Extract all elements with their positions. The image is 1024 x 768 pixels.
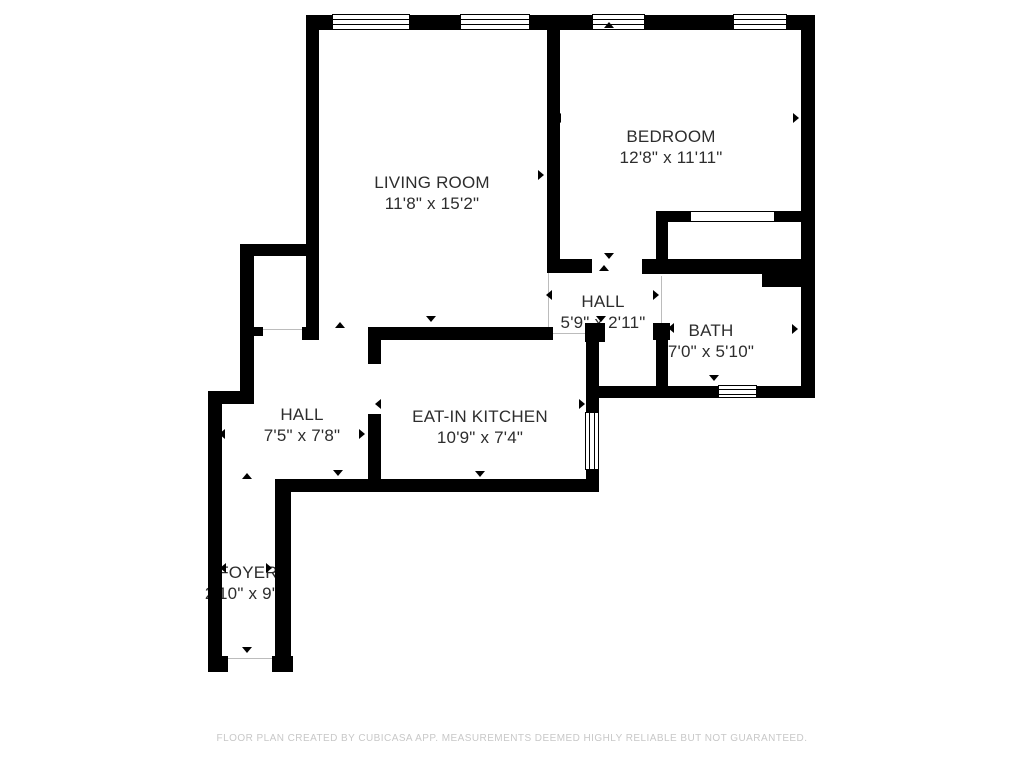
dimension-arrow-up-icon <box>335 322 345 328</box>
entry-door-opening <box>228 658 272 659</box>
dimension-arrow-left-icon <box>219 429 225 439</box>
room-label-bath: BATH7'0" x 5'10" <box>668 320 754 362</box>
room-dimensions-hall-lower: 7'5" x 7'8" <box>264 425 341 446</box>
room-label-bedroom: BEDROOM12'8" x 11'11" <box>620 126 723 168</box>
dimension-arrow-right-icon <box>792 324 798 334</box>
wall-kitchen-top <box>368 327 553 340</box>
floor-plan: LIVING ROOM11'8" x 15'2"BEDROOM12'8" x 1… <box>0 0 1024 768</box>
wall-kitchen-left-lower <box>368 414 381 492</box>
room-dimensions-eat-in-kitchen: 10'9" x 7'4" <box>412 427 548 448</box>
wall-bath-bottom <box>586 386 815 398</box>
dimension-arrow-right-icon <box>266 563 272 573</box>
room-label-eat-in-kitchen: EAT-IN KITCHEN10'9" x 7'4" <box>412 406 548 448</box>
wall-living-left-foot <box>302 327 319 340</box>
bedroom-window-2-icon <box>733 14 787 30</box>
wall-hall-kitchen-bottom <box>275 479 598 492</box>
room-name-eat-in-kitchen: EAT-IN KITCHEN <box>412 406 548 427</box>
dimension-arrow-down-icon <box>333 470 343 476</box>
dimension-arrow-right-icon <box>793 113 799 123</box>
dimension-arrow-left-icon <box>220 563 226 573</box>
room-dimensions-bath: 7'0" x 5'10" <box>668 341 754 362</box>
floor-plan-canvas: LIVING ROOM11'8" x 15'2"BEDROOM12'8" x 1… <box>0 0 1024 768</box>
dimension-arrow-up-icon <box>599 265 609 271</box>
window-pane-line <box>593 19 644 25</box>
wall-closet-top-right <box>775 211 815 222</box>
window-pane-line <box>589 413 595 469</box>
dimension-arrow-right-icon <box>538 170 544 180</box>
room-label-hall-lower: HALL7'5" x 7'8" <box>264 404 341 446</box>
disclaimer-text: FLOOR PLAN CREATED BY CUBICASA APP. MEAS… <box>0 733 1024 744</box>
dimension-arrow-down-icon <box>426 316 436 322</box>
kitchen-window-icon <box>585 412 599 470</box>
dimension-arrow-right-icon <box>653 290 659 300</box>
wall-bedroom-bottom-thick <box>762 259 815 287</box>
room-label-living-room: LIVING ROOM11'8" x 15'2" <box>374 172 490 214</box>
living-hall-boundary <box>548 273 549 328</box>
dimension-arrow-right-icon <box>359 429 365 439</box>
wall-alcove-left <box>240 244 254 396</box>
dimension-arrow-down-icon <box>596 316 606 322</box>
dimension-arrow-right-icon <box>579 399 585 409</box>
dimension-arrow-up-icon <box>706 263 716 269</box>
room-name-bath: BATH <box>668 320 754 341</box>
dimension-arrow-up-icon <box>422 22 432 28</box>
window-pane-line <box>333 19 409 25</box>
dimension-arrow-up-icon <box>472 327 482 333</box>
room-name-hall-lower: HALL <box>264 404 341 425</box>
dimension-arrow-down-icon <box>709 375 719 381</box>
kitchen-door-opening <box>553 333 585 334</box>
closet-sliding-door-icon <box>690 211 775 222</box>
bath-door-opening <box>661 276 662 323</box>
window-pane-line <box>734 19 786 25</box>
living-room-window-1-icon <box>332 14 410 30</box>
living-room-window-2-icon <box>460 14 530 30</box>
dimension-arrow-down-icon <box>604 253 614 259</box>
wall-kitchen-right-upper <box>586 342 599 414</box>
wall-closet-top-left <box>656 211 691 222</box>
room-dimensions-bedroom: 12'8" x 11'11" <box>620 147 723 168</box>
wall-living-bottom-right <box>547 259 592 273</box>
bedroom-window-1-icon <box>592 14 645 30</box>
window-pane-line <box>719 389 756 395</box>
bath-window-icon <box>718 385 757 398</box>
wall-kitchen-right-lower <box>586 468 599 492</box>
wall-foyer-right <box>275 487 291 672</box>
wall-kitchen-right-jamb <box>585 323 605 342</box>
dimension-arrow-down-icon <box>475 471 485 477</box>
room-dimensions-living-room: 11'8" x 15'2" <box>374 193 490 214</box>
dimension-arrow-up-icon <box>604 22 614 28</box>
wall-alcove-jamb <box>254 327 263 336</box>
dimension-arrow-left-icon <box>668 323 674 333</box>
wall-living-bed-divider <box>547 15 560 265</box>
room-name-hall-upper: HALL <box>561 291 646 312</box>
dimension-arrow-left-icon <box>555 113 561 123</box>
dimension-arrow-left-icon <box>546 290 552 300</box>
window-pane-line <box>461 19 529 25</box>
dimension-arrow-left-icon <box>375 399 381 409</box>
room-name-living-room: LIVING ROOM <box>374 172 490 193</box>
closet-opening <box>256 329 304 330</box>
dimension-arrow-left-icon <box>313 170 319 180</box>
dimension-arrow-up-icon <box>242 473 252 479</box>
wall-foyer-foot-left <box>208 656 228 672</box>
room-name-bedroom: BEDROOM <box>620 126 723 147</box>
wall-right <box>801 15 815 398</box>
dimension-arrow-down-icon <box>242 647 252 653</box>
